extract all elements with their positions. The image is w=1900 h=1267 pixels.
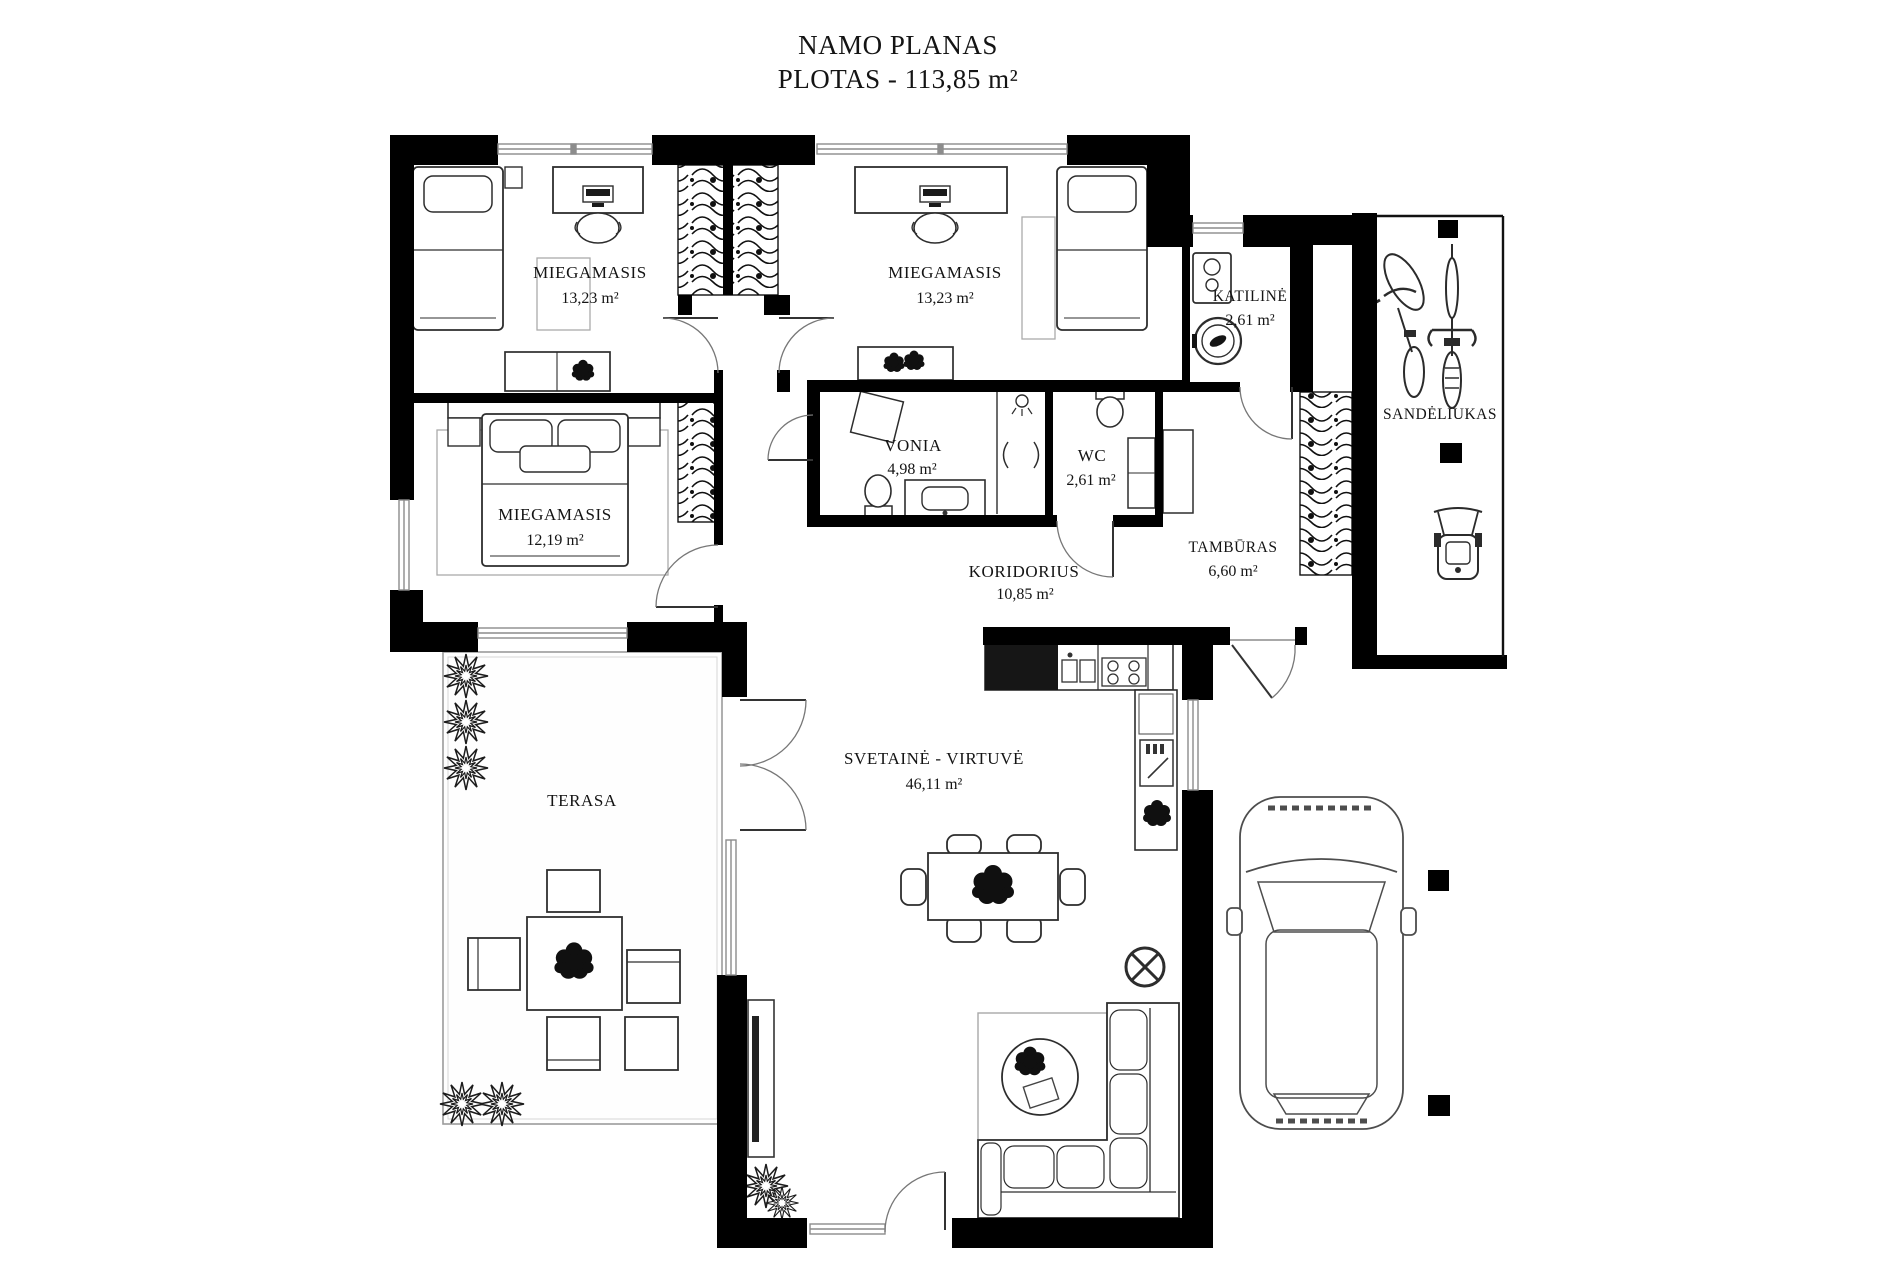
window-icon <box>1193 223 1243 233</box>
room-area-living: 46,11 m² <box>906 776 963 793</box>
wardrobe-icon <box>678 397 718 522</box>
room-label-bedroom1: MIEGAMASIS <box>533 263 647 282</box>
storage-outline <box>1377 216 1503 657</box>
bicycle-icon <box>1429 244 1476 408</box>
room-label-living: SVETAINĖ - VIRTUVĖ <box>844 749 1024 768</box>
door-icon <box>885 1172 945 1232</box>
bicycle-icon <box>1371 248 1432 397</box>
room-area-bath: 4,98 m² <box>887 461 936 478</box>
plan-subtitle: PLOTAS - 113,85 m² <box>778 64 1018 94</box>
floor-plan-drawing: NAMO PLANAS PLOTAS - 113,85 m² MIEGAMASI… <box>0 0 1900 1267</box>
room-area-bedroom1: 13,23 m² <box>561 290 618 307</box>
boiler-room-fixtures <box>1192 253 1241 364</box>
room-area-wc: 2,61 m² <box>1066 472 1115 489</box>
chest-icon <box>858 347 953 380</box>
lawn-mower-icon <box>1434 508 1482 579</box>
desk-icon <box>855 167 1007 243</box>
carport-post <box>1428 1095 1450 1116</box>
double-door-icon <box>740 700 806 830</box>
tv-unit <box>748 1000 774 1157</box>
room-area-vestibule: 6,60 m² <box>1208 563 1257 580</box>
floor-plan-page: NAMO PLANAS PLOTAS - 113,85 m² MIEGAMASI… <box>0 0 1900 1267</box>
desk-icon <box>553 167 643 243</box>
door-icon <box>779 318 834 373</box>
plan-title: NAMO PLANAS <box>798 30 998 60</box>
room-area-bedroom2: 13,23 m² <box>916 290 973 307</box>
room-area-corridor: 10,85 m² <box>996 586 1053 603</box>
room-area-bedroom3: 12,19 m² <box>526 532 583 549</box>
window-icon <box>478 628 627 638</box>
lamp-symbol-icon <box>1126 948 1164 986</box>
bed-icon <box>413 167 522 330</box>
room-label-bath: VONIA <box>884 436 942 455</box>
door-icon <box>663 318 718 373</box>
window-icon <box>399 500 409 590</box>
closet-block <box>678 165 778 295</box>
window-icon <box>817 144 1067 154</box>
room-label-bedroom3: MIEGAMASIS <box>498 505 612 524</box>
window-icon <box>1188 700 1198 790</box>
room-label-corridor: KORIDORIUS <box>969 562 1080 581</box>
window-icon <box>498 144 652 154</box>
oven-icon <box>1140 740 1173 786</box>
coffee-table <box>1002 1039 1078 1115</box>
door-icon <box>1240 387 1292 439</box>
kitchen-counter <box>985 642 1177 850</box>
door-icon <box>656 545 718 607</box>
car-icon <box>1227 797 1416 1129</box>
room-area-boiler: 2,61 m² <box>1225 312 1274 329</box>
window-icon <box>810 1224 885 1234</box>
room-label-vestibule: TAMBŪRAS <box>1189 539 1278 556</box>
room-label-terrace: TERASA <box>547 791 617 810</box>
room-label-bedroom2: MIEGAMASIS <box>888 263 1002 282</box>
bed-icon <box>1057 167 1147 330</box>
living-room-furniture <box>744 642 1179 1220</box>
window-icon <box>726 840 736 975</box>
terrace-area <box>440 652 722 1126</box>
room-label-storage: SANDĖLIUKAS <box>1383 406 1497 423</box>
wardrobe-icon <box>1300 392 1352 575</box>
room-label-wc: WC <box>1078 446 1107 465</box>
door-icon <box>1230 640 1295 698</box>
carport-post <box>1428 870 1449 891</box>
room-label-boiler: KATILINĖ <box>1213 288 1288 305</box>
door-icon <box>768 415 813 460</box>
sofa <box>978 1003 1179 1218</box>
dresser-icon <box>505 352 610 391</box>
